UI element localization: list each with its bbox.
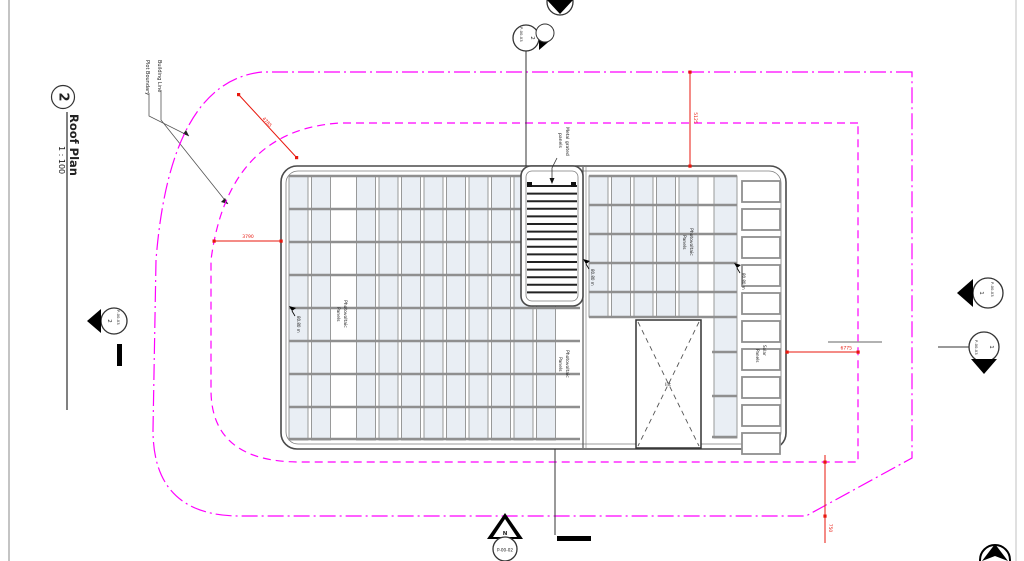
section-sheet: P-00-03: [519, 27, 524, 42]
solar-panel: [742, 349, 780, 370]
dim-text: 5125: [692, 112, 698, 124]
section-number: 1: [978, 291, 984, 295]
elevation-marker-bottom: N P-00-02: [487, 513, 523, 561]
view-number: 2: [56, 92, 71, 101]
spot-elevation-text: 80.80 m: [741, 273, 746, 290]
lift-label: lift: [665, 382, 671, 388]
dim-right-setback: 6775: [786, 342, 883, 354]
metal-grated-label: Metal grated: [564, 127, 570, 156]
section-marker-top-edge: [536, 0, 573, 42]
pv-panel-column: [589, 176, 608, 317]
solar-panel: [742, 405, 780, 426]
section-number: 2: [106, 319, 112, 323]
section-sheet: P-00-03: [116, 310, 121, 325]
building-line-label: Building Line: [156, 60, 162, 92]
section-number: 1: [988, 345, 994, 349]
dim-text: 4785: [261, 116, 273, 129]
pv-label: Panels: [335, 307, 341, 322]
elevation-sheet: P-00-02: [497, 548, 513, 553]
solar-panel: [742, 237, 780, 258]
section-bubble: [101, 308, 127, 334]
dim-bottom-setback: 750: [823, 455, 833, 543]
solar-panel: [742, 433, 780, 454]
north-arrow-needle: [982, 544, 1008, 561]
section-arrow-icon: [971, 359, 997, 374]
metal-grated-label: panels: [557, 133, 563, 148]
solar-panel: [742, 321, 780, 342]
view-scale: 1 : 100: [57, 146, 66, 174]
pv-panel-column: [634, 176, 653, 317]
stair-enclosure: [521, 166, 583, 306]
solar-label: Panels: [755, 349, 760, 362]
matchline-bar: [557, 536, 591, 541]
section-number: 2: [529, 36, 535, 40]
leader-arrow-icon: [221, 198, 228, 204]
pv-label: Photovoltaic: [342, 300, 348, 328]
section-marker-right-lower: P-00-03 1: [938, 332, 999, 374]
dim-left-setback: 3790: [213, 234, 283, 243]
spot-elevation-text: 80.80 m: [590, 269, 595, 286]
section-arrow-icon: [87, 309, 101, 333]
stair-treads: [527, 186, 577, 292]
section-marker-right-upper: 1 P-00-03: [957, 278, 1003, 308]
plot-boundary-label: Plot Boundary: [144, 60, 150, 95]
pv-panel-column: [657, 176, 676, 317]
matchline-bar: [117, 344, 122, 366]
section-marker-left: 2 P-00-03: [87, 308, 127, 334]
pv-panel-column: [612, 176, 631, 317]
section-arrow-icon: [957, 279, 973, 307]
dim-text: 6775: [841, 346, 853, 352]
building-line-leader: [161, 90, 228, 204]
boundary-legend: Plot Boundary Building Line: [144, 60, 228, 204]
solar-panel: [742, 209, 780, 230]
dim-top-setback: 5125: [688, 71, 698, 168]
pv-label: Photovoltaic: [688, 228, 694, 256]
solar-label: Solar: [762, 345, 767, 356]
pv-label: Panels: [557, 357, 563, 372]
pv-panel-column: [714, 176, 737, 438]
view-name: Roof Plan: [67, 114, 81, 176]
spot-elevation-text: 80.80 m: [296, 316, 301, 333]
solar-panel: [742, 265, 780, 286]
section-sheet: P-00-03: [990, 282, 995, 297]
roof-plan-drawing: 2 Roof Plan 1 : 100 Plot Boundary Buildi…: [0, 0, 1024, 561]
north-arrow-icon: [980, 544, 1010, 561]
dim-text: 750: [827, 524, 833, 533]
stair-post: [571, 182, 576, 187]
section-bubble: [973, 278, 1003, 308]
section-sheet: P-00-03: [974, 340, 979, 355]
pv-label: Photovoltaic: [564, 350, 570, 378]
solar-panel: [742, 181, 780, 202]
pv-label: Panels: [681, 235, 687, 250]
view-title: 2 Roof Plan 1 : 100: [52, 86, 82, 411]
callout-bubble: [536, 24, 554, 42]
lift-shaft: lift: [636, 320, 701, 448]
stair-post: [527, 182, 532, 187]
solar-panel: [742, 377, 780, 398]
elevation-letter: N: [503, 531, 508, 537]
roof-plan-sheet: 2 Roof Plan 1 : 100 Plot Boundary Buildi…: [0, 0, 1024, 561]
dim-plot-diagonal: 4785: [237, 93, 298, 159]
solar-panel: [742, 293, 780, 314]
dim-text: 3790: [242, 234, 254, 240]
